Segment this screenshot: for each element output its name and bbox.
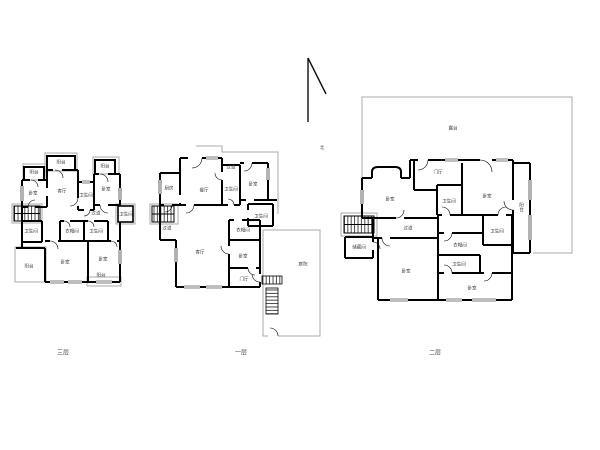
- floor-plan-first-floor: [150, 146, 320, 336]
- room-label: 阳台: [24, 264, 33, 269]
- caption-first-floor: 一层: [235, 348, 247, 357]
- room-label: 阳台: [519, 203, 524, 212]
- room-label: 卫生间: [89, 229, 103, 234]
- room-label: 庭院: [298, 262, 307, 267]
- room-label: 阳台: [96, 273, 105, 278]
- room-label: 卫生间: [442, 199, 456, 204]
- room-label: 卧室: [401, 269, 410, 274]
- room-label: 客厅: [195, 250, 204, 255]
- room-label: 过道: [226, 165, 235, 170]
- room-label: 储藏间: [352, 245, 366, 250]
- room-label: 卫生间: [24, 229, 38, 234]
- room-label: 阳台: [29, 170, 38, 175]
- room-label: 卫生间: [452, 262, 466, 267]
- staircase: [152, 206, 174, 222]
- room-label: 卧室: [101, 187, 110, 192]
- window-gaps: [362, 160, 530, 300]
- room-label: 卧室: [238, 254, 247, 259]
- staircase: [344, 216, 374, 233]
- room-label: 客厅: [57, 189, 66, 194]
- floor-plan-sheet: 阳台阳台阳台卧室客厅卫生间卧室过道卫生间卫生间衣帽间卫生间卧室卧室阳台阳台厨房餐…: [0, 0, 600, 450]
- entry-steps: [262, 276, 282, 284]
- room-label: 卫生间: [119, 212, 133, 217]
- room-label: 卫生间: [224, 187, 238, 192]
- window-lines: [361, 159, 531, 301]
- terrace-outline: [341, 97, 572, 253]
- courtyard-stairs: [266, 288, 278, 314]
- room-label: 过道: [91, 211, 100, 216]
- caption-second-floor: 二层: [429, 348, 441, 357]
- room-label: 厨房: [164, 186, 173, 191]
- room-label: 过道: [403, 226, 412, 231]
- room-label: 衣帽间: [453, 243, 467, 248]
- room-label: 门厅: [239, 277, 248, 282]
- room-label: 卧室: [98, 257, 107, 262]
- room-label: 卧室: [248, 182, 257, 187]
- staircase: [14, 206, 40, 221]
- room-label: 门厅: [433, 170, 442, 175]
- room-label: 卧室: [385, 197, 394, 202]
- north-label: 北: [320, 144, 325, 151]
- room-label: 衣帽间: [236, 228, 250, 233]
- room-label: 卫生间: [254, 214, 268, 219]
- room-label: 卧室: [28, 191, 37, 196]
- room-label: 卧室: [467, 286, 476, 291]
- room-label: 过道: [162, 226, 171, 231]
- door-arcs: [373, 160, 513, 281]
- caption-third-floor: 三层: [57, 348, 69, 357]
- room-label: 卫生间: [79, 193, 93, 198]
- room-label: 衣帽间: [65, 229, 79, 234]
- room-label: 阳台: [56, 160, 65, 165]
- room-label: 卫生间: [490, 229, 504, 234]
- room-label: 餐厅: [199, 188, 208, 193]
- room-label: 露台: [448, 126, 457, 131]
- floor-plan-drawing: [0, 0, 600, 450]
- room-label: 阳台: [100, 164, 109, 169]
- room-label: 卧室: [60, 260, 69, 265]
- north-arrow-icon: [308, 58, 326, 122]
- room-label: 卧室: [482, 194, 491, 199]
